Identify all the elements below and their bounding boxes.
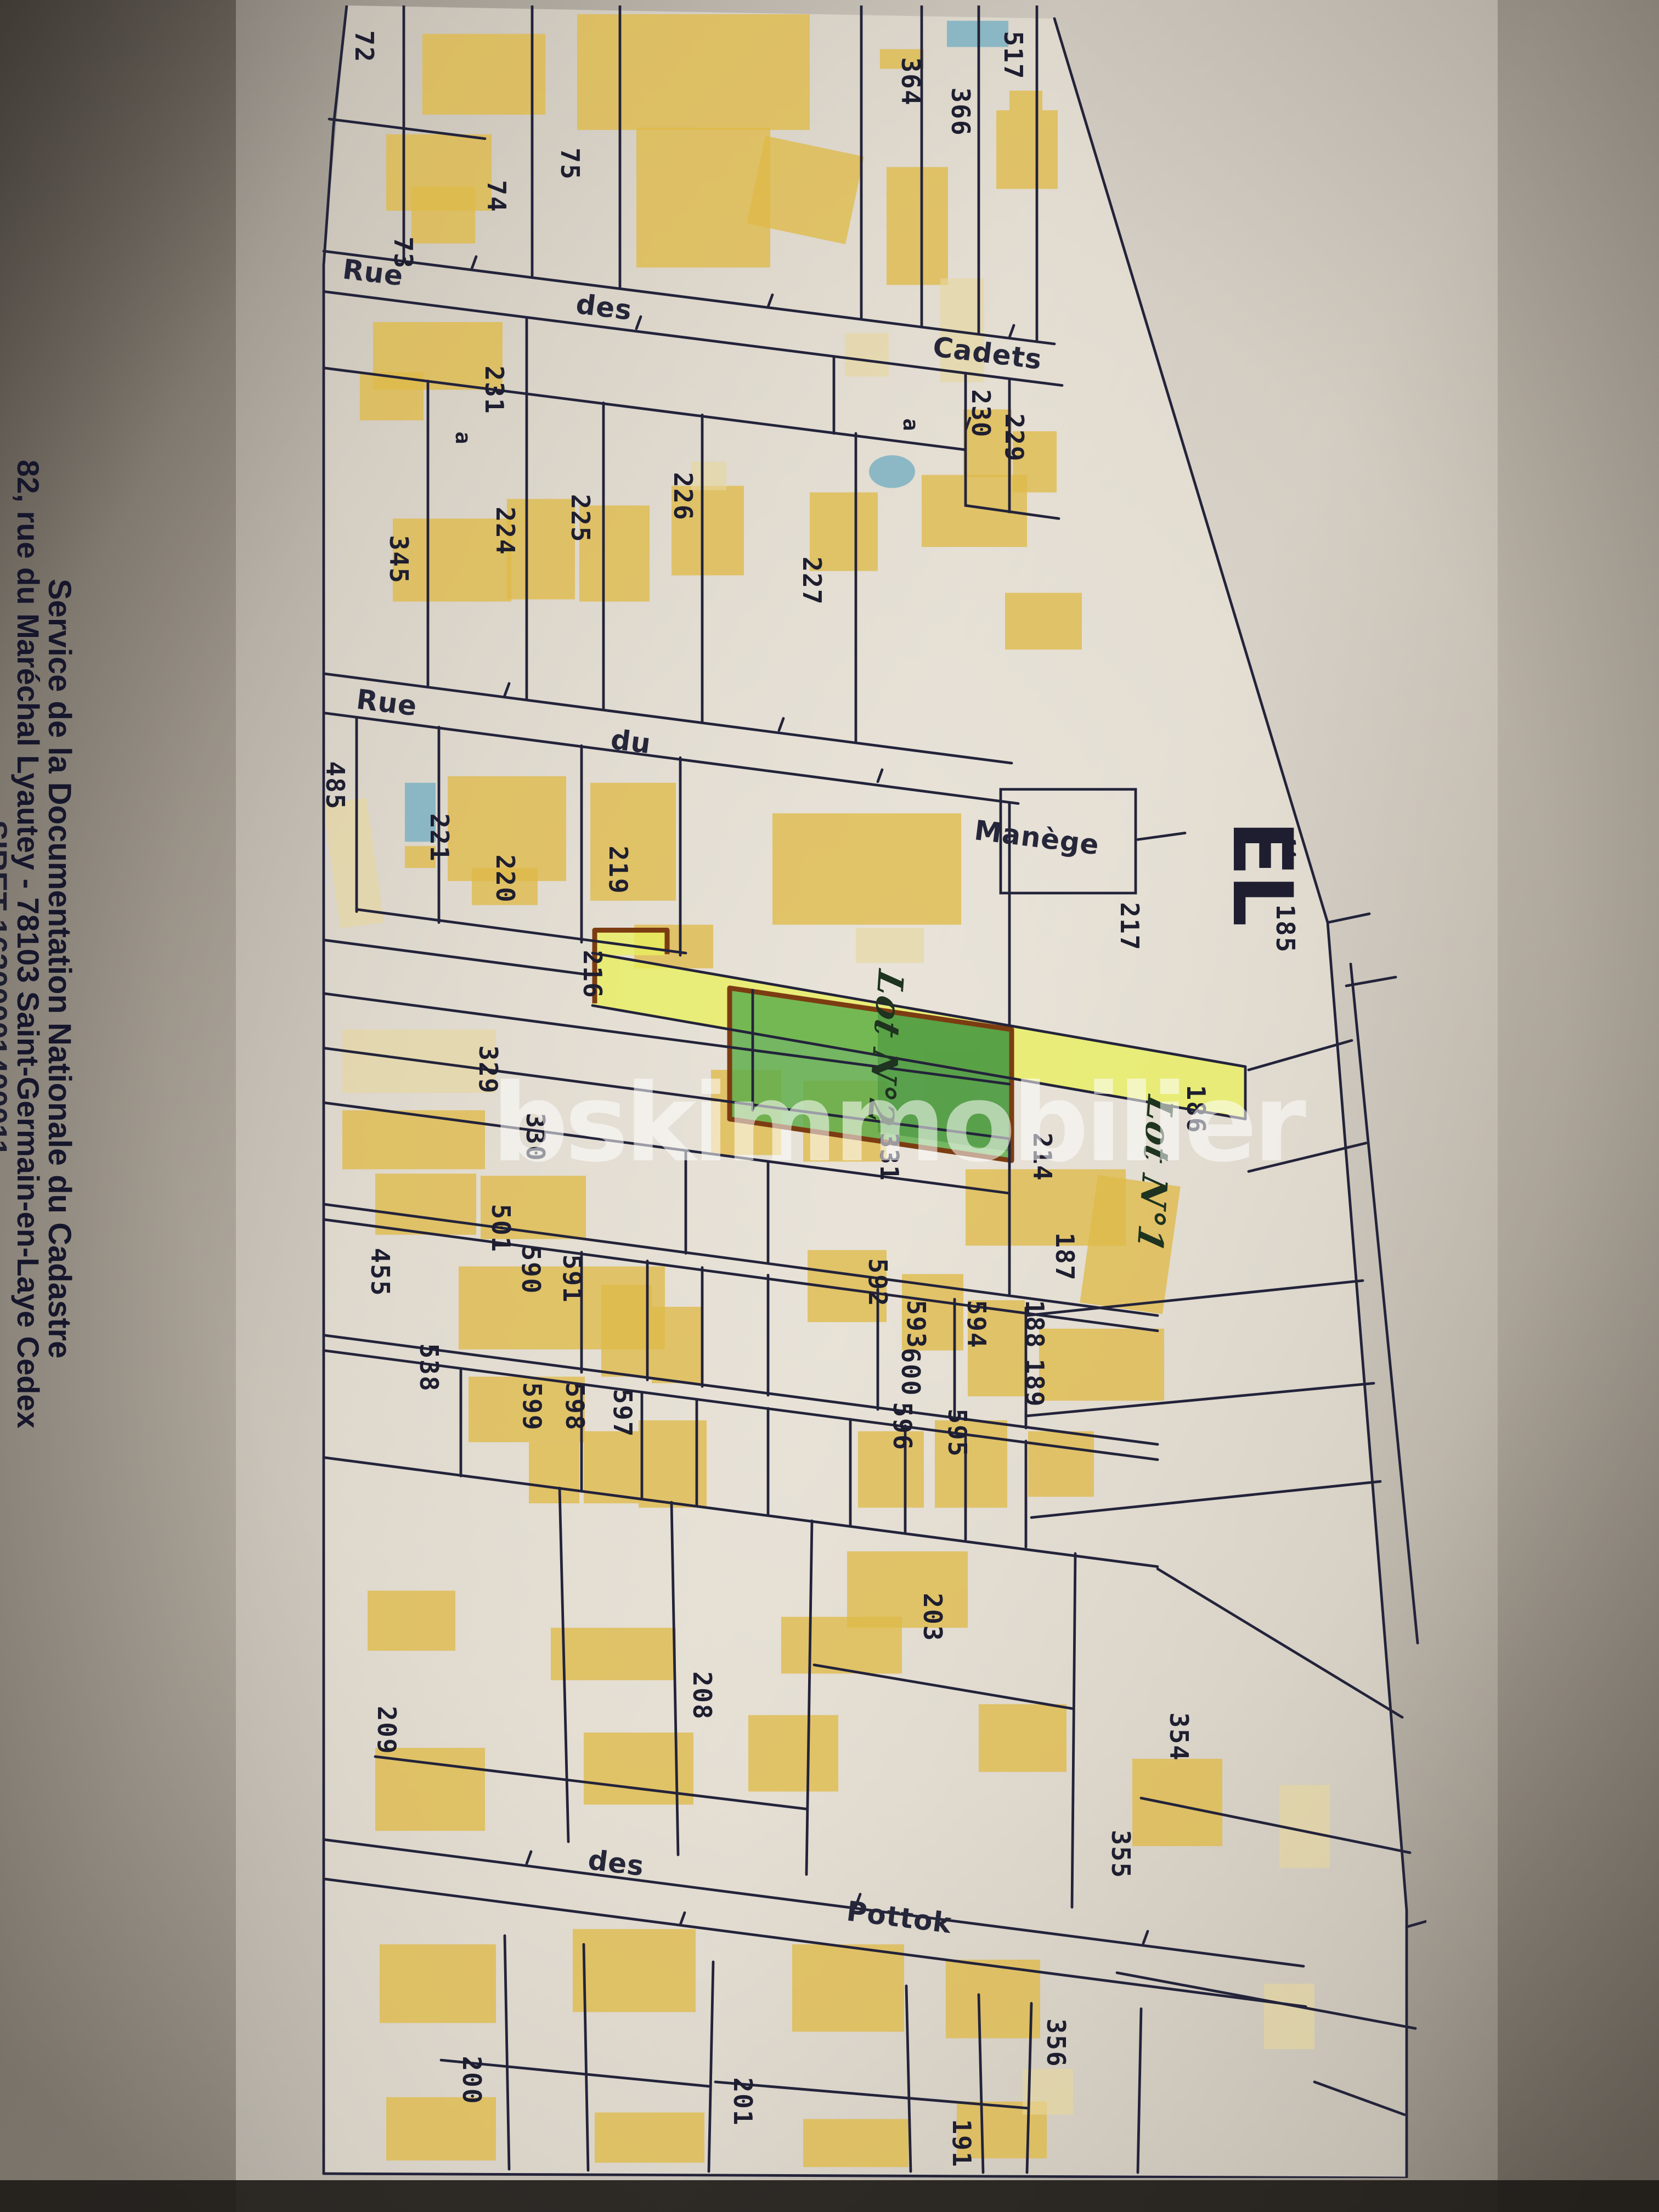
parcel-label-187: 187 xyxy=(1052,1232,1077,1281)
parcel-label-596: 596 xyxy=(890,1402,915,1451)
sender-line-address: 82, rue du Maréchal Lyautey - 78103 Sain… xyxy=(10,460,46,1429)
parcel-label-225: 225 xyxy=(568,494,593,543)
parcel-label-217: 217 xyxy=(1117,902,1142,951)
parcel-label-354: 354 xyxy=(1166,1713,1192,1762)
parcel-label-220: 220 xyxy=(493,854,518,903)
cadastral-map: 72737475364366517RuedesCadets231aa230229… xyxy=(307,5,1426,2178)
pond-parcel-a xyxy=(869,455,915,488)
parcel-label-209: 209 xyxy=(374,1706,399,1755)
parcel-label-501: 501 xyxy=(488,1204,513,1253)
street-word-du-manege: du xyxy=(609,726,652,758)
sender-line-service: Service de la Documentation Nationale du… xyxy=(41,579,78,1358)
parcel-label-329: 329 xyxy=(476,1046,501,1094)
parcel-label-592: 592 xyxy=(865,1259,890,1307)
parcel-label-591: 591 xyxy=(560,1254,585,1303)
parcel-label-364: 364 xyxy=(898,57,923,106)
parcel-label-517: 517 xyxy=(1001,31,1026,80)
parcel-label-75: 75 xyxy=(557,148,583,180)
parcel-label-221: 221 xyxy=(427,813,452,862)
parcel-label-355: 355 xyxy=(1108,1830,1133,1878)
parcel-label-356: 356 xyxy=(1043,2019,1069,2068)
parcel-label-331: 331 xyxy=(877,1132,902,1181)
parcel-label-600: 600 xyxy=(898,1347,923,1396)
parcel-label-230: 230 xyxy=(968,390,994,438)
parcel-label-188: 188 xyxy=(1022,1300,1047,1348)
parcel-label-219: 219 xyxy=(606,846,631,895)
parcel-label-598: 598 xyxy=(562,1383,588,1431)
street-word-des-pottok: des xyxy=(586,1846,646,1880)
parcel-label-74: 74 xyxy=(484,180,509,213)
street-word-rue-cadets: Rue xyxy=(341,255,405,290)
parcel-label-227: 227 xyxy=(799,557,825,606)
parcel-label-72: 72 xyxy=(352,31,377,63)
street-word-des-cadets: des xyxy=(574,290,634,324)
parcel-label-485: 485 xyxy=(323,761,348,810)
sub-label-a-2: a xyxy=(900,419,921,431)
parcel-label-200: 200 xyxy=(459,2056,484,2104)
sub-label-a-1: a xyxy=(453,432,473,444)
parcel-label-185: 185 xyxy=(1273,904,1298,953)
parcel-label-593: 593 xyxy=(904,1300,929,1348)
hand-label-lot-2: Lot N°2 xyxy=(862,967,907,1130)
parcel-label-216: 216 xyxy=(580,950,605,999)
parcel-label-214: 214 xyxy=(1030,1132,1055,1181)
parcel-label-231: 231 xyxy=(482,365,507,414)
parcel-label-590: 590 xyxy=(518,1245,544,1294)
parcel-label-201: 201 xyxy=(730,2078,755,2126)
parcel-label-455: 455 xyxy=(368,1248,393,1296)
parcel-label-224: 224 xyxy=(493,507,518,556)
sender-line-siret: SIRET 16300001400011 xyxy=(0,820,14,1156)
parcel-label-208: 208 xyxy=(690,1671,715,1720)
hand-label-lot-1: Lot N°1 xyxy=(1132,1093,1177,1256)
cadastral-map-photo: Service de la Documentation Nationale du… xyxy=(0,0,1659,2212)
parcel-label-599: 599 xyxy=(520,1383,545,1431)
tick-label-14: 14 xyxy=(1280,838,1297,858)
parcel-label-330: 330 xyxy=(523,1113,548,1162)
parcel-label-594: 594 xyxy=(964,1300,989,1348)
parcel-label-366: 366 xyxy=(948,87,973,136)
parcel-label-597: 597 xyxy=(610,1389,635,1438)
parcel-label-595: 595 xyxy=(945,1408,970,1457)
parcel-label-538: 538 xyxy=(416,1343,442,1392)
parcel-label-189: 189 xyxy=(1022,1358,1047,1407)
parcel-label-191: 191 xyxy=(949,2119,974,2168)
street-word-rue-manege: Rue xyxy=(355,686,419,720)
parcel-label-229: 229 xyxy=(1002,413,1027,462)
parcel-label-203: 203 xyxy=(920,1593,945,1642)
parcel-label-345: 345 xyxy=(386,535,411,584)
parcel-label-226: 226 xyxy=(670,472,696,521)
parcel-label-186: 186 xyxy=(1183,1085,1209,1133)
